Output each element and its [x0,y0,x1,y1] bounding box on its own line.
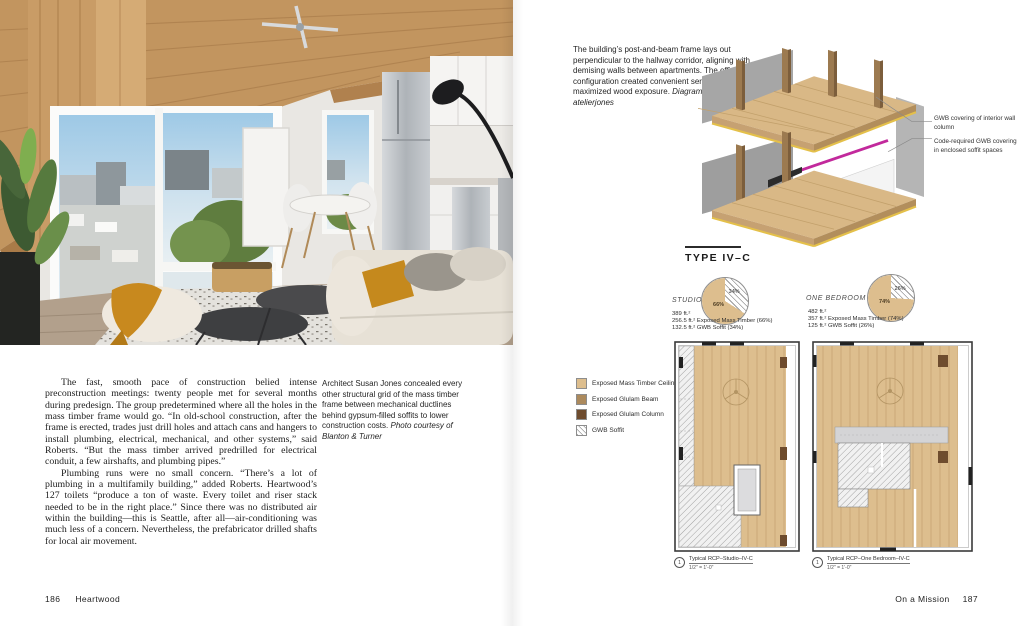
ceiling-legend: Exposed Mass Timber Ceiling Exposed Glul… [576,378,678,440]
one-bedroom-area: 482 ft.² [808,309,943,316]
basket [212,262,272,292]
section-title: TYPE IV–C [685,252,751,264]
studio-stat-timber: 256.5 ft.² Exposed Mass Timber (66%) [672,318,807,325]
body-text-column: The fast, smooth pace of construction be… [45,377,317,547]
studio-plan-caption: 1 Typical RCP–Studio–IV-C 1/2" = 1'-0" [674,556,753,571]
axon-label-wall-column: GWB covering of interior wall column [934,114,1022,132]
photo-caption: Architect Susan Jones concealed every ot… [322,379,474,442]
studio-pie-gwb-label: 34% [729,289,740,295]
axonometric-frame-diagram [698,48,933,248]
legend-item-gwb-soffit: GWB Soffit [576,425,678,436]
studio-label: STUDIO [672,297,702,304]
left-folio-number: 186 [45,594,60,604]
one-bedroom-stat-gwb: 125 ft.² GWB Soffit (26%) [808,323,943,330]
studio-drawing-number: 1 [674,557,685,568]
one-bedroom-stat-timber: 357 ft.² Exposed Mass Timber (74%) [808,316,943,323]
body-paragraph: The fast, smooth pace of construction be… [45,377,317,468]
one-bedroom-soffit-band [835,427,948,443]
one-bedroom-plan-scale: 1/2" = 1'-0" [827,564,910,571]
studio-pie-timber-label: 66% [713,302,724,308]
book-spread: The fast, smooth pace of construction be… [0,0,1024,626]
studio-plan-title: Typical RCP–Studio–IV-C [689,556,753,564]
left-page-footer: 186 Heartwood [45,594,120,604]
right-running-head: On a Mission [895,594,949,604]
axon-label-soffit: Code-required GWB covering in enclosed s… [934,137,1022,155]
studio-plan-scale: 1/2" = 1'-0" [689,564,753,571]
apartment-photo [0,0,513,345]
one-bedroom-floor-plan [810,339,975,554]
glulam-column-swatch [576,409,587,420]
page-gutter [501,0,523,626]
legend-item-glulam-beam: Exposed Glulam Beam [576,394,678,405]
studio-floor-plan [672,339,802,554]
legend-item-glulam-column: Exposed Glulam Column [576,409,678,420]
glulam-beam-swatch [576,394,587,405]
gwb-soffit-swatch [576,425,587,436]
cream-pillow [450,247,506,281]
mass-timber-swatch [576,378,587,389]
one-bedroom-label: ONE BEDROOM [806,295,866,302]
one-bedroom-pie-timber-label: 74% [879,299,890,305]
studio-gwb-soffit-bottom [679,486,741,547]
studio-area: 389 ft.² [672,311,807,318]
one-bedroom-plan-caption: 1 Typical RCP–One Bedroom–IV-C 1/2" = 1'… [812,556,910,571]
right-folio-number: 187 [963,594,978,604]
one-bedroom-stats: 482 ft.² 357 ft.² Exposed Mass Timber (7… [808,309,943,331]
body-paragraph: Plumbing runs were no small concern. “Th… [45,468,317,547]
sofa [326,247,513,345]
one-bedroom-drawing-number: 1 [812,557,823,568]
studio-stats: 389 ft.² 256.5 ft.² Exposed Mass Timber … [672,311,807,333]
right-page-footer: On a Mission 187 [840,594,978,604]
one-bedroom-pie-gwb-label: 26% [895,286,906,292]
left-running-head: Heartwood [75,594,120,604]
one-bedroom-plan-title: Typical RCP–One Bedroom–IV-C [827,556,910,564]
wall-panel [243,128,289,246]
studio-stat-gwb: 132.5 ft.² GWB Soffit (34%) [672,325,807,332]
section-rule [685,246,741,248]
legend-item-mass-timber: Exposed Mass Timber Ceiling [576,378,678,389]
